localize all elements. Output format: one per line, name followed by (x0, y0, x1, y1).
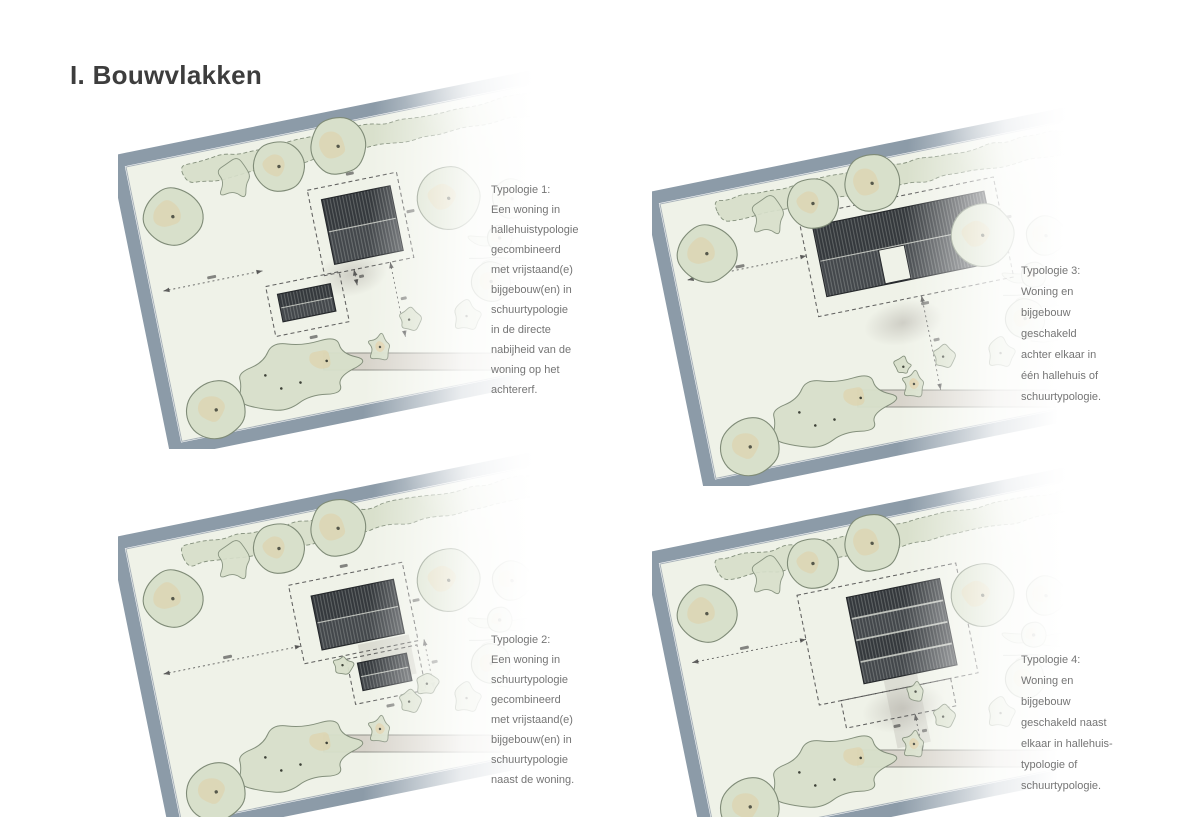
caption-typologie-3: Typologie 3: Woning en bijgebouw geschak… (1021, 261, 1176, 408)
site-plan-typologie-2 (118, 453, 548, 817)
site-plan-typologie-1-illustration (118, 71, 548, 449)
site-plan-typologie-3-illustration (652, 108, 1082, 486)
site-plan-typologie-1 (118, 71, 548, 449)
site-plan-typologie-2-illustration (118, 453, 548, 817)
page: I. Bouwvlakken Typologie 1: Een woning i… (0, 0, 1200, 817)
site-plan-typologie-4 (652, 468, 1082, 817)
caption-typologie-2: Typologie 2: Een woning in schuurtypolog… (491, 630, 609, 790)
site-plan-typologie-3 (652, 108, 1082, 486)
site-plan-typologie-4-illustration (652, 468, 1082, 817)
caption-typologie-4: Typologie 4: Woning en bijgebouw geschak… (1021, 650, 1176, 797)
caption-typologie-1: Typologie 1: Een woning in hallehuistypo… (491, 180, 609, 400)
